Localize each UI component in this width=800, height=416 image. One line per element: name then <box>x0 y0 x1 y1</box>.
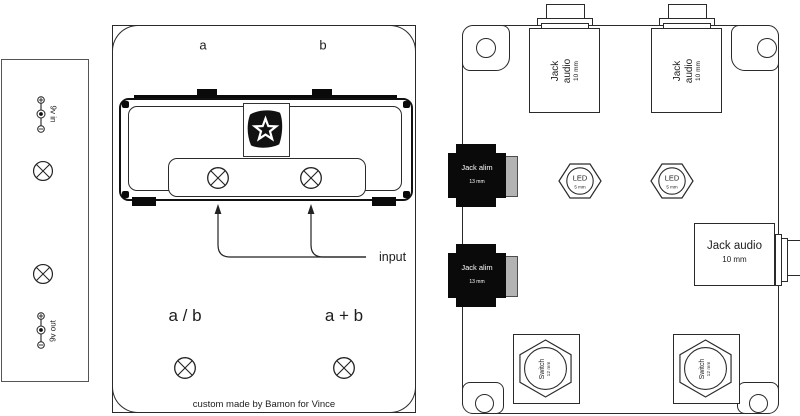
drill-hole-icon <box>332 356 356 380</box>
jack-alim-size: 13 mm <box>448 279 506 285</box>
input-arrows <box>206 201 386 263</box>
jack-barrel <box>787 240 800 276</box>
jack-audio-body: Jack audio 10 mm <box>529 28 600 113</box>
dc-side-panel: 9v in 9v out <box>1 59 89 382</box>
footswitch-marker: Switch 12 mm <box>673 334 740 404</box>
channel-a-label: a <box>199 38 206 53</box>
jack-alim-assembly: Jack alim 13 mm <box>448 244 518 307</box>
switch-label: Switch <box>539 359 547 380</box>
jack-audio-label: Jack audio <box>671 53 694 88</box>
switch-size: 12 mm <box>547 359 553 380</box>
channel-b-label: b <box>319 38 326 53</box>
mode-a-plus-b-label: a + b <box>325 306 363 326</box>
corner-arc <box>390 25 416 51</box>
pedal-layout-diagram: 9v in 9v out a b <box>0 0 800 416</box>
assembly-recess <box>168 158 366 197</box>
led-size: 5 mm <box>574 185 585 190</box>
corner-mark <box>403 101 410 108</box>
jack-alim-flange <box>456 197 496 207</box>
jack-alim-flange <box>456 297 496 307</box>
dc-in-label: 9v in <box>49 106 58 123</box>
jack-alim-size: 13 mm <box>448 179 506 185</box>
input-label: input <box>379 250 406 264</box>
star-logo-icon <box>245 105 286 153</box>
led-label: LED <box>665 174 680 183</box>
corner-arc <box>112 25 138 51</box>
dc-out-label: 9v out <box>49 320 58 342</box>
footswitch-marker: Switch 12 mm <box>513 334 580 404</box>
drill-hole-icon <box>299 166 323 190</box>
dc-jack-out-icon <box>35 311 47 351</box>
led-label: LED <box>573 174 588 183</box>
jack-audio-size: 10 mm <box>572 53 579 88</box>
screw-hole <box>475 394 494 413</box>
jack-alim-assembly: Jack alim 13 mm <box>448 144 518 207</box>
drill-hole-icon <box>206 166 230 190</box>
led-marker: LED 5 mm <box>556 161 604 201</box>
screw-hole <box>757 38 777 58</box>
jack-alim-plug: Jack alim 13 mm <box>448 253 506 298</box>
corner-mark <box>122 191 129 198</box>
dc-jack-in-icon <box>35 95 47 135</box>
star-logo-frame <box>243 103 290 157</box>
jack-audio-label: Jack audio <box>549 53 572 88</box>
jack-audio-body: Jack audio 10 mm <box>651 28 722 113</box>
drill-hole-icon <box>173 356 197 380</box>
jack-alim-label: Jack alim <box>448 263 506 272</box>
jack-audio-label: Jack audio <box>695 240 774 252</box>
corner-mark <box>122 101 129 108</box>
screw-hole <box>476 38 496 58</box>
switch-size: 12 mm <box>707 359 713 380</box>
jack-alim-label: Jack alim <box>448 163 506 172</box>
enclosure-drill-panel: Jack audio 10 mm Jack audio 10 mm Jack a… <box>462 25 779 414</box>
led-marker: LED 5 mm <box>648 161 696 201</box>
switch-label: Switch <box>699 359 707 380</box>
led-size: 5 mm <box>666 185 677 190</box>
drill-hole-icon <box>32 263 54 285</box>
drill-hole-icon <box>32 160 54 182</box>
jack-audio-size: 10 mm <box>695 255 774 264</box>
assembly-foot <box>132 197 156 206</box>
jack-audio-size: 10 mm <box>694 53 701 88</box>
jack-alim-plug: Jack alim 13 mm <box>448 153 506 198</box>
mode-ab-label: a / b <box>168 306 201 326</box>
corner-mark <box>403 191 410 198</box>
caption: custom made by Bamon for Vince <box>113 399 415 410</box>
screw-hole <box>749 394 768 413</box>
pedal-top-view-panel: a b <box>112 25 416 413</box>
jack-audio-out-body: Jack audio 10 mm <box>694 223 775 286</box>
